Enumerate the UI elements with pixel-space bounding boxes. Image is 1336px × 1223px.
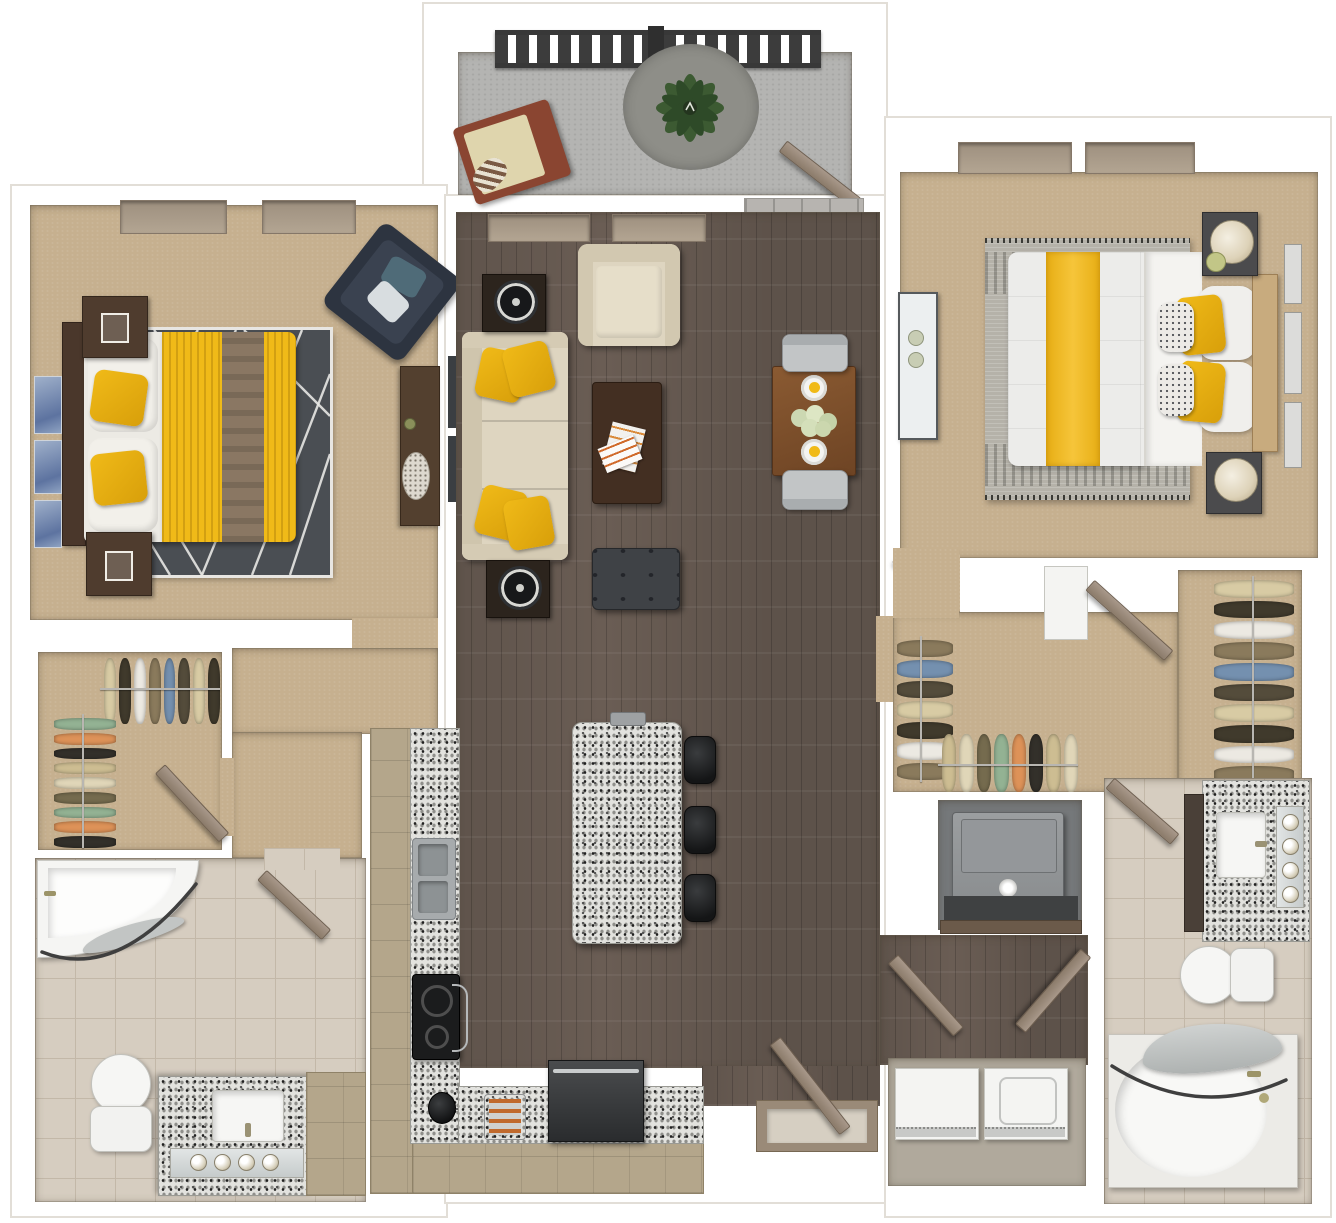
garment (1214, 725, 1294, 743)
bathroom1-doorway-tile (264, 848, 340, 870)
plate-food (809, 382, 820, 393)
sofa-cushion-seam (482, 420, 568, 422)
table-lamp (101, 313, 129, 343)
bed2-patterned-pillow (1158, 364, 1194, 416)
garment (134, 658, 146, 724)
bedroom1-nook-carpet (232, 648, 438, 734)
bed2-patterned-pillow (1158, 302, 1194, 352)
oven-handle (452, 984, 468, 1052)
toilet-tank (90, 1106, 152, 1152)
bar-stool (684, 736, 716, 784)
living-armchair (578, 244, 680, 346)
floor-plan (0, 0, 1336, 1223)
garment (119, 658, 131, 724)
bed1-pillow-zone (84, 332, 164, 542)
round-lamp (1214, 458, 1258, 502)
garment (54, 718, 116, 730)
closet3-rod (1252, 576, 1254, 784)
round-speaker (494, 280, 538, 324)
nightstand-plant (1206, 252, 1226, 272)
sink-faucet (245, 1123, 251, 1137)
garment (54, 807, 116, 819)
garment (1012, 734, 1026, 792)
vanity-light (262, 1154, 279, 1171)
bedroom2-window-inset-b (1085, 142, 1195, 174)
hall-wood-floor (880, 935, 1088, 1065)
mech-closet-threshold (940, 920, 1082, 934)
garment (54, 792, 116, 804)
bedroom1-dresser (400, 366, 440, 526)
bathroom1-vanity-sink (212, 1090, 284, 1142)
vanity-light (190, 1154, 207, 1171)
plate-food (809, 446, 820, 457)
garment (164, 658, 176, 724)
sink-faucet (1255, 841, 1267, 847)
living-window-inset-b (612, 214, 706, 242)
living-wall-tv-strip (448, 436, 456, 502)
bedroom1-doorway-carpet (352, 618, 438, 652)
garment (1214, 663, 1294, 681)
garment (1214, 704, 1294, 722)
table-lamp (105, 551, 133, 581)
garment (193, 658, 205, 724)
garment (208, 658, 220, 724)
round-speaker (498, 566, 542, 610)
kitchen-counter-left (410, 728, 460, 1144)
bed1-runner (222, 332, 264, 542)
closet2-bottom-clothes-rack (940, 732, 1080, 794)
living-window-inset-a (488, 214, 590, 242)
vanity-light (1282, 838, 1299, 855)
garment (1214, 642, 1294, 660)
right-hall-upper-carpet (893, 548, 959, 618)
entry-floor (767, 1109, 867, 1143)
coffee-table (592, 382, 662, 504)
bar-stool (684, 874, 716, 922)
bath1-hall-carpet (232, 732, 362, 858)
bed2-yellow-runner (1046, 252, 1100, 466)
bed2-headboard (1252, 274, 1278, 452)
closet1-doorway-carpet (220, 758, 234, 836)
dining-table (772, 366, 856, 476)
tub-faucet (44, 891, 56, 896)
garment (54, 821, 116, 833)
entry-door-frame (756, 1100, 878, 1152)
garment (54, 748, 116, 760)
bedroom1-window-inset-a (120, 200, 227, 234)
bedroom1-wall-art (34, 376, 62, 434)
toaster (484, 1094, 526, 1140)
garment (178, 658, 190, 724)
closet1-rod (100, 688, 220, 690)
bedroom1-wall-art (34, 500, 62, 548)
washer (895, 1068, 979, 1140)
mech-closet-platform (944, 896, 1078, 922)
garment (54, 733, 116, 745)
water-heater (952, 812, 1064, 902)
closet2-rod (938, 764, 1078, 766)
garment (1214, 580, 1294, 598)
vanity-light (1282, 886, 1299, 903)
bar-stool (684, 806, 716, 854)
bathroom2-vanity-sink (1216, 812, 1266, 878)
garment (54, 836, 116, 848)
flower-centerpiece (791, 405, 837, 439)
picture-frame (1284, 312, 1302, 394)
garment (897, 701, 953, 718)
closet1-rod (82, 714, 84, 848)
picture-frame (1284, 244, 1302, 304)
bedroom1-nightstand-top (82, 296, 148, 358)
garment (1029, 734, 1043, 792)
toilet-tank (1230, 948, 1274, 1002)
kitchen-sink (412, 838, 456, 920)
garment (1214, 601, 1294, 619)
picture-frame (1284, 402, 1302, 468)
garment (897, 681, 953, 698)
garment (1214, 621, 1294, 639)
potted-plant (642, 60, 738, 156)
refrigerator (548, 1060, 644, 1142)
closet-open-door-panel (1044, 566, 1088, 640)
dresser-decor-plate (404, 418, 416, 430)
bedroom2-dresser (898, 292, 938, 440)
ottoman (592, 548, 680, 610)
bedroom2-window-inset-a (958, 142, 1072, 174)
vanity-light (214, 1154, 231, 1171)
garment (54, 762, 116, 774)
closet1-left-clothes-rack (52, 716, 118, 850)
bathroom2-toilet (1180, 944, 1272, 1004)
garment (1064, 734, 1078, 792)
garment (897, 660, 953, 677)
closet3-clothes-rack (1212, 578, 1296, 786)
dining-chair (782, 470, 848, 510)
armchair-arm (578, 244, 593, 346)
bed1-yellow-pillow (89, 449, 148, 506)
closet1-top-clothes-rack (102, 656, 222, 726)
vanity-light (1282, 862, 1299, 879)
bedroom1-nightstand-bottom (86, 532, 152, 596)
garment (1214, 746, 1294, 764)
vanity-light (238, 1154, 255, 1171)
bathroom2-cabinet-strip (1184, 794, 1204, 932)
bathroom1-side-cabinet (306, 1072, 366, 1196)
bed1-yellow-pillow (89, 368, 150, 427)
garment (54, 777, 116, 789)
bedroom1-window-inset-b (262, 200, 356, 234)
garment (1046, 734, 1060, 792)
bedroom1-wall-art (34, 440, 62, 494)
kitchen-cabinet-band-left (370, 728, 414, 1194)
toilet-bowl (91, 1054, 151, 1114)
garment (104, 658, 116, 724)
armchair-cushion (596, 266, 662, 338)
garment (897, 640, 953, 657)
kitchen-cabinet-band-bottom (412, 1140, 704, 1194)
kitchen-island (572, 722, 682, 944)
garment (977, 734, 991, 792)
dresser-decor-oval (402, 452, 430, 500)
closet2-rod (920, 636, 922, 782)
living-wall-tv-strip (448, 356, 456, 428)
armchair-arm (665, 244, 680, 346)
garment (942, 734, 956, 792)
vanity-light (1282, 814, 1299, 831)
garment (994, 734, 1008, 792)
tub-handle (1259, 1093, 1269, 1103)
kettle (428, 1092, 456, 1124)
bathroom1-toilet (90, 1054, 150, 1154)
garment (959, 734, 973, 792)
bed2-folded-sheet (1144, 252, 1202, 466)
island-gadget (610, 712, 646, 726)
tub-faucet (1247, 1071, 1261, 1077)
dining-chair (782, 334, 848, 372)
garment (149, 658, 161, 724)
heater-knob (999, 879, 1017, 897)
sofa-yellow-pillow (502, 494, 556, 551)
garment (1214, 684, 1294, 702)
dryer (984, 1068, 1068, 1140)
